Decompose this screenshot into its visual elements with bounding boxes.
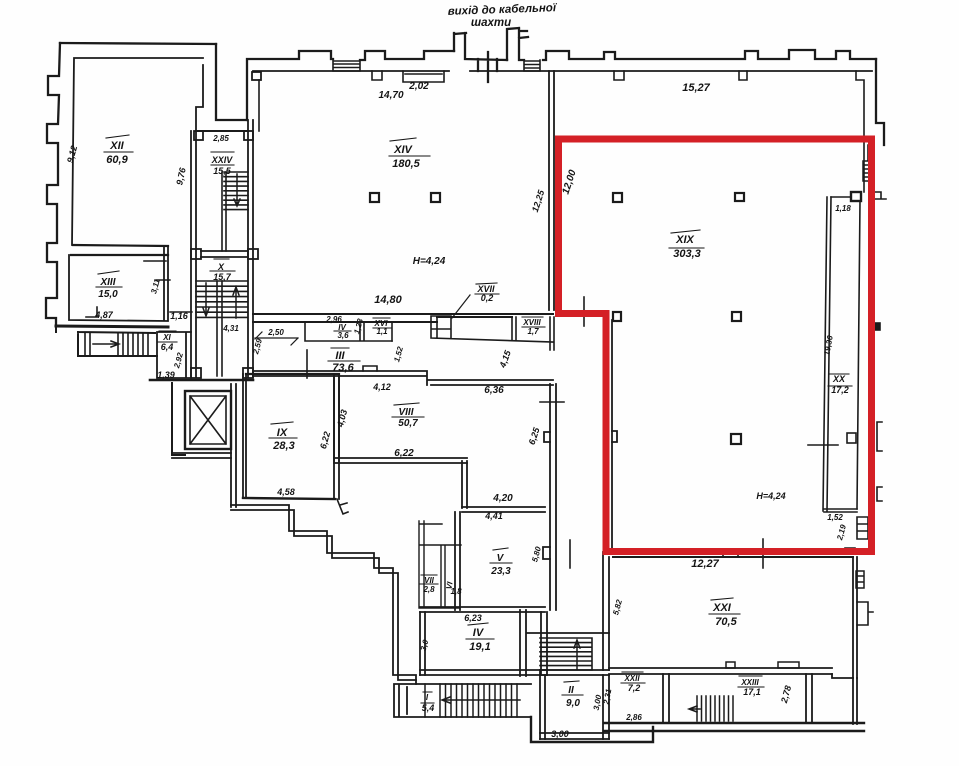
svg-text:XIV: XIV xyxy=(393,144,413,156)
svg-text:XXII: XXII xyxy=(623,674,640,683)
svg-text:4,87: 4,87 xyxy=(94,310,114,320)
svg-text:4,41: 4,41 xyxy=(484,511,503,521)
svg-text:70,5: 70,5 xyxy=(715,616,737,628)
svg-text:3,6: 3,6 xyxy=(337,331,349,340)
svg-text:IV: IV xyxy=(473,627,485,639)
svg-text:2,50: 2,50 xyxy=(267,328,284,337)
svg-text:15,27: 15,27 xyxy=(682,82,710,94)
svg-text:1,18: 1,18 xyxy=(835,204,851,213)
svg-text:4,31: 4,31 xyxy=(222,324,239,333)
svg-text:2,86: 2,86 xyxy=(625,713,642,722)
svg-text:1,39: 1,39 xyxy=(157,370,175,380)
svg-text:6,22: 6,22 xyxy=(318,430,332,450)
svg-text:303,3: 303,3 xyxy=(673,248,701,260)
svg-text:XX: XX xyxy=(832,374,846,384)
svg-text:XVIII: XVIII xyxy=(522,318,541,327)
svg-text:шахти: шахти xyxy=(471,17,511,29)
svg-text:1,7: 1,7 xyxy=(527,327,539,336)
svg-text:3,0: 3,0 xyxy=(419,638,431,652)
svg-text:Н=4,24: Н=4,24 xyxy=(756,491,785,501)
svg-text:II: II xyxy=(568,685,574,696)
svg-text:III: III xyxy=(335,350,345,362)
svg-text:12,00: 12,00 xyxy=(561,168,579,196)
svg-text:2,78: 2,78 xyxy=(779,684,793,704)
svg-text:XII: XII xyxy=(109,140,124,152)
svg-text:XXIV: XXIV xyxy=(211,155,234,165)
svg-text:2,92: 2,92 xyxy=(172,351,185,370)
svg-text:7,2: 7,2 xyxy=(628,683,641,693)
svg-text:12,27: 12,27 xyxy=(691,558,719,570)
svg-text:4,03: 4,03 xyxy=(335,408,349,428)
svg-text:XIII: XIII xyxy=(99,277,115,288)
svg-text:5,82: 5,82 xyxy=(611,598,624,616)
svg-text:1,23: 1,23 xyxy=(352,317,365,335)
svg-text:9,0: 9,0 xyxy=(566,698,580,709)
svg-text:5,80: 5,80 xyxy=(530,545,543,563)
svg-text:3,11: 3,11 xyxy=(149,277,162,294)
svg-text:60,9: 60,9 xyxy=(106,154,128,166)
svg-text:1,52: 1,52 xyxy=(392,345,405,363)
svg-text:23,3: 23,3 xyxy=(490,566,511,577)
svg-text:5,4: 5,4 xyxy=(422,703,435,713)
svg-text:3,00: 3,00 xyxy=(551,729,569,739)
svg-text:6,22: 6,22 xyxy=(394,448,414,459)
svg-text:17,1: 17,1 xyxy=(743,687,761,697)
svg-text:15,0: 15,0 xyxy=(98,289,118,300)
svg-text:6,23: 6,23 xyxy=(464,613,482,623)
svg-text:6,25: 6,25 xyxy=(527,425,542,446)
svg-text:VIII: VIII xyxy=(398,407,413,418)
svg-text:73,6: 73,6 xyxy=(332,362,354,374)
svg-text:I: I xyxy=(426,693,429,702)
svg-text:9,76: 9,76 xyxy=(174,166,188,186)
svg-text:14,70: 14,70 xyxy=(378,90,403,101)
svg-text:V: V xyxy=(497,553,505,564)
svg-text:2,85: 2,85 xyxy=(212,134,229,143)
svg-text:19,36: 19,36 xyxy=(822,334,834,356)
svg-text:1,52: 1,52 xyxy=(827,513,843,522)
svg-text:1,8: 1,8 xyxy=(450,587,462,596)
svg-text:6,4: 6,4 xyxy=(161,342,174,352)
svg-text:2,19: 2,19 xyxy=(835,523,848,542)
svg-text:4,58: 4,58 xyxy=(276,487,295,497)
svg-text:вихід до кабельної: вихід до кабельної xyxy=(448,2,559,18)
svg-text:4,12: 4,12 xyxy=(372,382,391,392)
svg-text:4,15: 4,15 xyxy=(497,348,513,370)
svg-text:2,8: 2,8 xyxy=(422,585,435,594)
svg-text:15,7: 15,7 xyxy=(213,272,232,282)
svg-text:Н=4,24: Н=4,24 xyxy=(413,256,446,267)
svg-text:2,02: 2,02 xyxy=(408,81,429,92)
svg-text:6,36: 6,36 xyxy=(484,385,504,396)
svg-text:9,12: 9,12 xyxy=(65,144,79,164)
svg-text:180,5: 180,5 xyxy=(392,158,420,170)
svg-text:4,20: 4,20 xyxy=(492,493,513,504)
svg-text:2,31: 2,31 xyxy=(602,688,614,706)
svg-text:15,5: 15,5 xyxy=(213,166,232,176)
svg-text:14,80: 14,80 xyxy=(374,294,402,306)
svg-text:19,1: 19,1 xyxy=(469,641,490,653)
svg-text:28,3: 28,3 xyxy=(272,440,294,452)
svg-text:XIX: XIX xyxy=(675,234,694,246)
svg-text:1,16: 1,16 xyxy=(170,311,189,321)
svg-text:XI: XI xyxy=(162,333,171,342)
svg-text:50,7: 50,7 xyxy=(398,418,418,429)
svg-text:XXI: XXI xyxy=(712,602,732,614)
svg-text:12,25: 12,25 xyxy=(530,188,547,213)
svg-text:XXIII: XXIII xyxy=(740,678,759,687)
svg-text:IX: IX xyxy=(277,427,288,439)
